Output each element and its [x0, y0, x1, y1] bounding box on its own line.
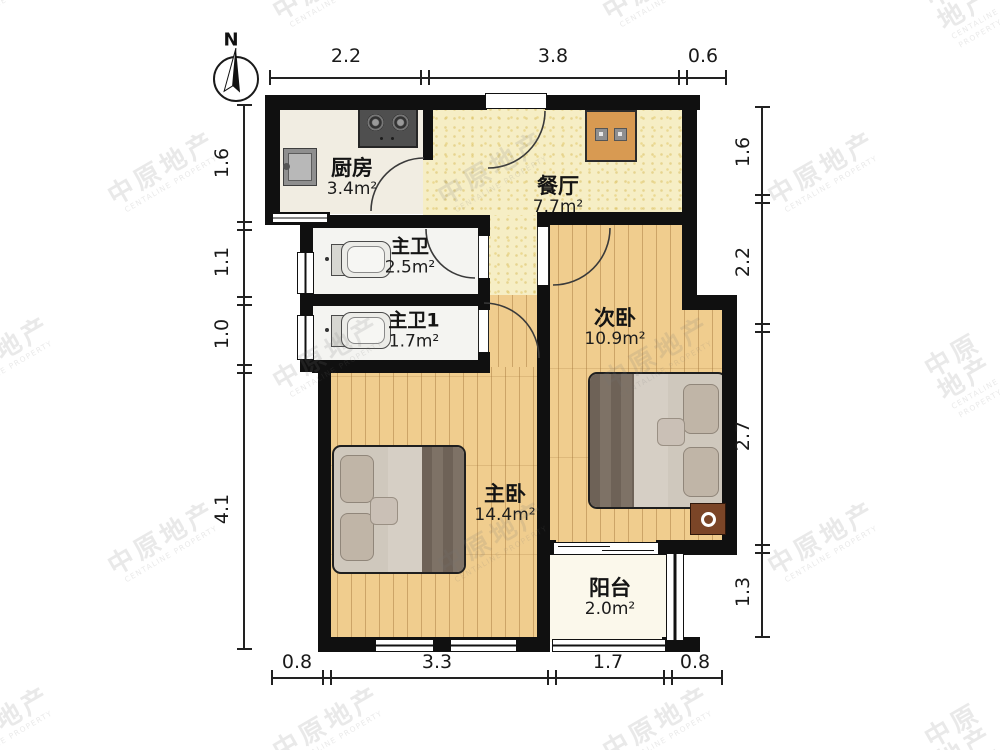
room-area: 14.4m² — [474, 506, 535, 526]
second-bedroom-door-gap — [537, 227, 549, 285]
room-area: 3.4m² — [327, 180, 377, 200]
room-label-dining: 餐厅 7.7m² — [533, 174, 583, 218]
dim-value: 1.7 — [593, 651, 623, 673]
dim-value: 1.6 — [211, 148, 233, 178]
dim-value: 0.8 — [282, 651, 312, 673]
room-label-balcony: 阳台 2.0m² — [585, 576, 635, 620]
room-name: 厨房 — [327, 156, 377, 180]
room-area: 2.0m² — [585, 600, 635, 620]
room-name: 主卧 — [474, 482, 535, 506]
room-name: 餐厅 — [533, 174, 583, 198]
room-name: 次卧 — [584, 306, 645, 330]
door-arcs — [0, 0, 1000, 750]
room-area: 7.7m² — [533, 198, 583, 218]
compass-needle-icon — [205, 40, 265, 110]
bath-master-window — [297, 252, 314, 294]
dim-value: 2.7 — [732, 421, 754, 451]
bath-master-1-door-arc — [484, 303, 539, 358]
master-window-2 — [450, 639, 517, 652]
room-label-bath-master: 主卫 2.5m² — [385, 236, 435, 277]
slider-pane — [602, 550, 654, 552]
floorplan-canvas: 厨房 3.4m² 餐厅 7.7m² 主卫 2.5m² 主卫1 1.7m² 次卧 … — [0, 0, 1000, 750]
dim-value: 2.2 — [331, 45, 361, 67]
slider-pane — [558, 546, 610, 548]
room-name: 阳台 — [585, 576, 635, 600]
entrance-door-arc — [488, 111, 545, 168]
dim-value: 1.1 — [211, 247, 233, 277]
room-label-master-bedroom: 主卧 14.4m² — [474, 482, 535, 526]
balcony-slider — [553, 542, 659, 555]
room-label-bath-master-1: 主卫1 1.7m² — [388, 310, 439, 351]
bath-master-door-gap — [478, 236, 489, 278]
room-name: 主卫 — [385, 236, 435, 258]
dim-value: 4.1 — [211, 494, 233, 524]
dim-value: 3.3 — [422, 651, 452, 673]
balcony-right-window — [666, 553, 684, 641]
entrance-threshold — [485, 93, 547, 109]
dim-value: 0.8 — [680, 651, 710, 673]
dim-value: 1.6 — [732, 137, 754, 167]
dim-value: 0.6 — [688, 45, 718, 67]
room-area: 10.9m² — [584, 330, 645, 350]
bath-master-1-door-gap — [478, 310, 489, 352]
bath-master-1-window — [297, 315, 314, 360]
dim-value: 3.8 — [538, 45, 568, 67]
room-name: 主卫1 — [388, 310, 439, 332]
room-area: 1.7m² — [388, 332, 439, 352]
kitchen-window — [272, 213, 328, 223]
room-label-kitchen: 厨房 3.4m² — [327, 156, 377, 200]
room-label-second-bedroom: 次卧 10.9m² — [584, 306, 645, 350]
second-bedroom-door-arc — [553, 228, 610, 285]
dim-value: 1.3 — [732, 577, 754, 607]
kitchen-door-arc — [371, 158, 424, 211]
dim-value: 2.2 — [732, 247, 754, 277]
room-area: 2.5m² — [385, 258, 435, 278]
dim-value: 1.0 — [211, 319, 233, 349]
